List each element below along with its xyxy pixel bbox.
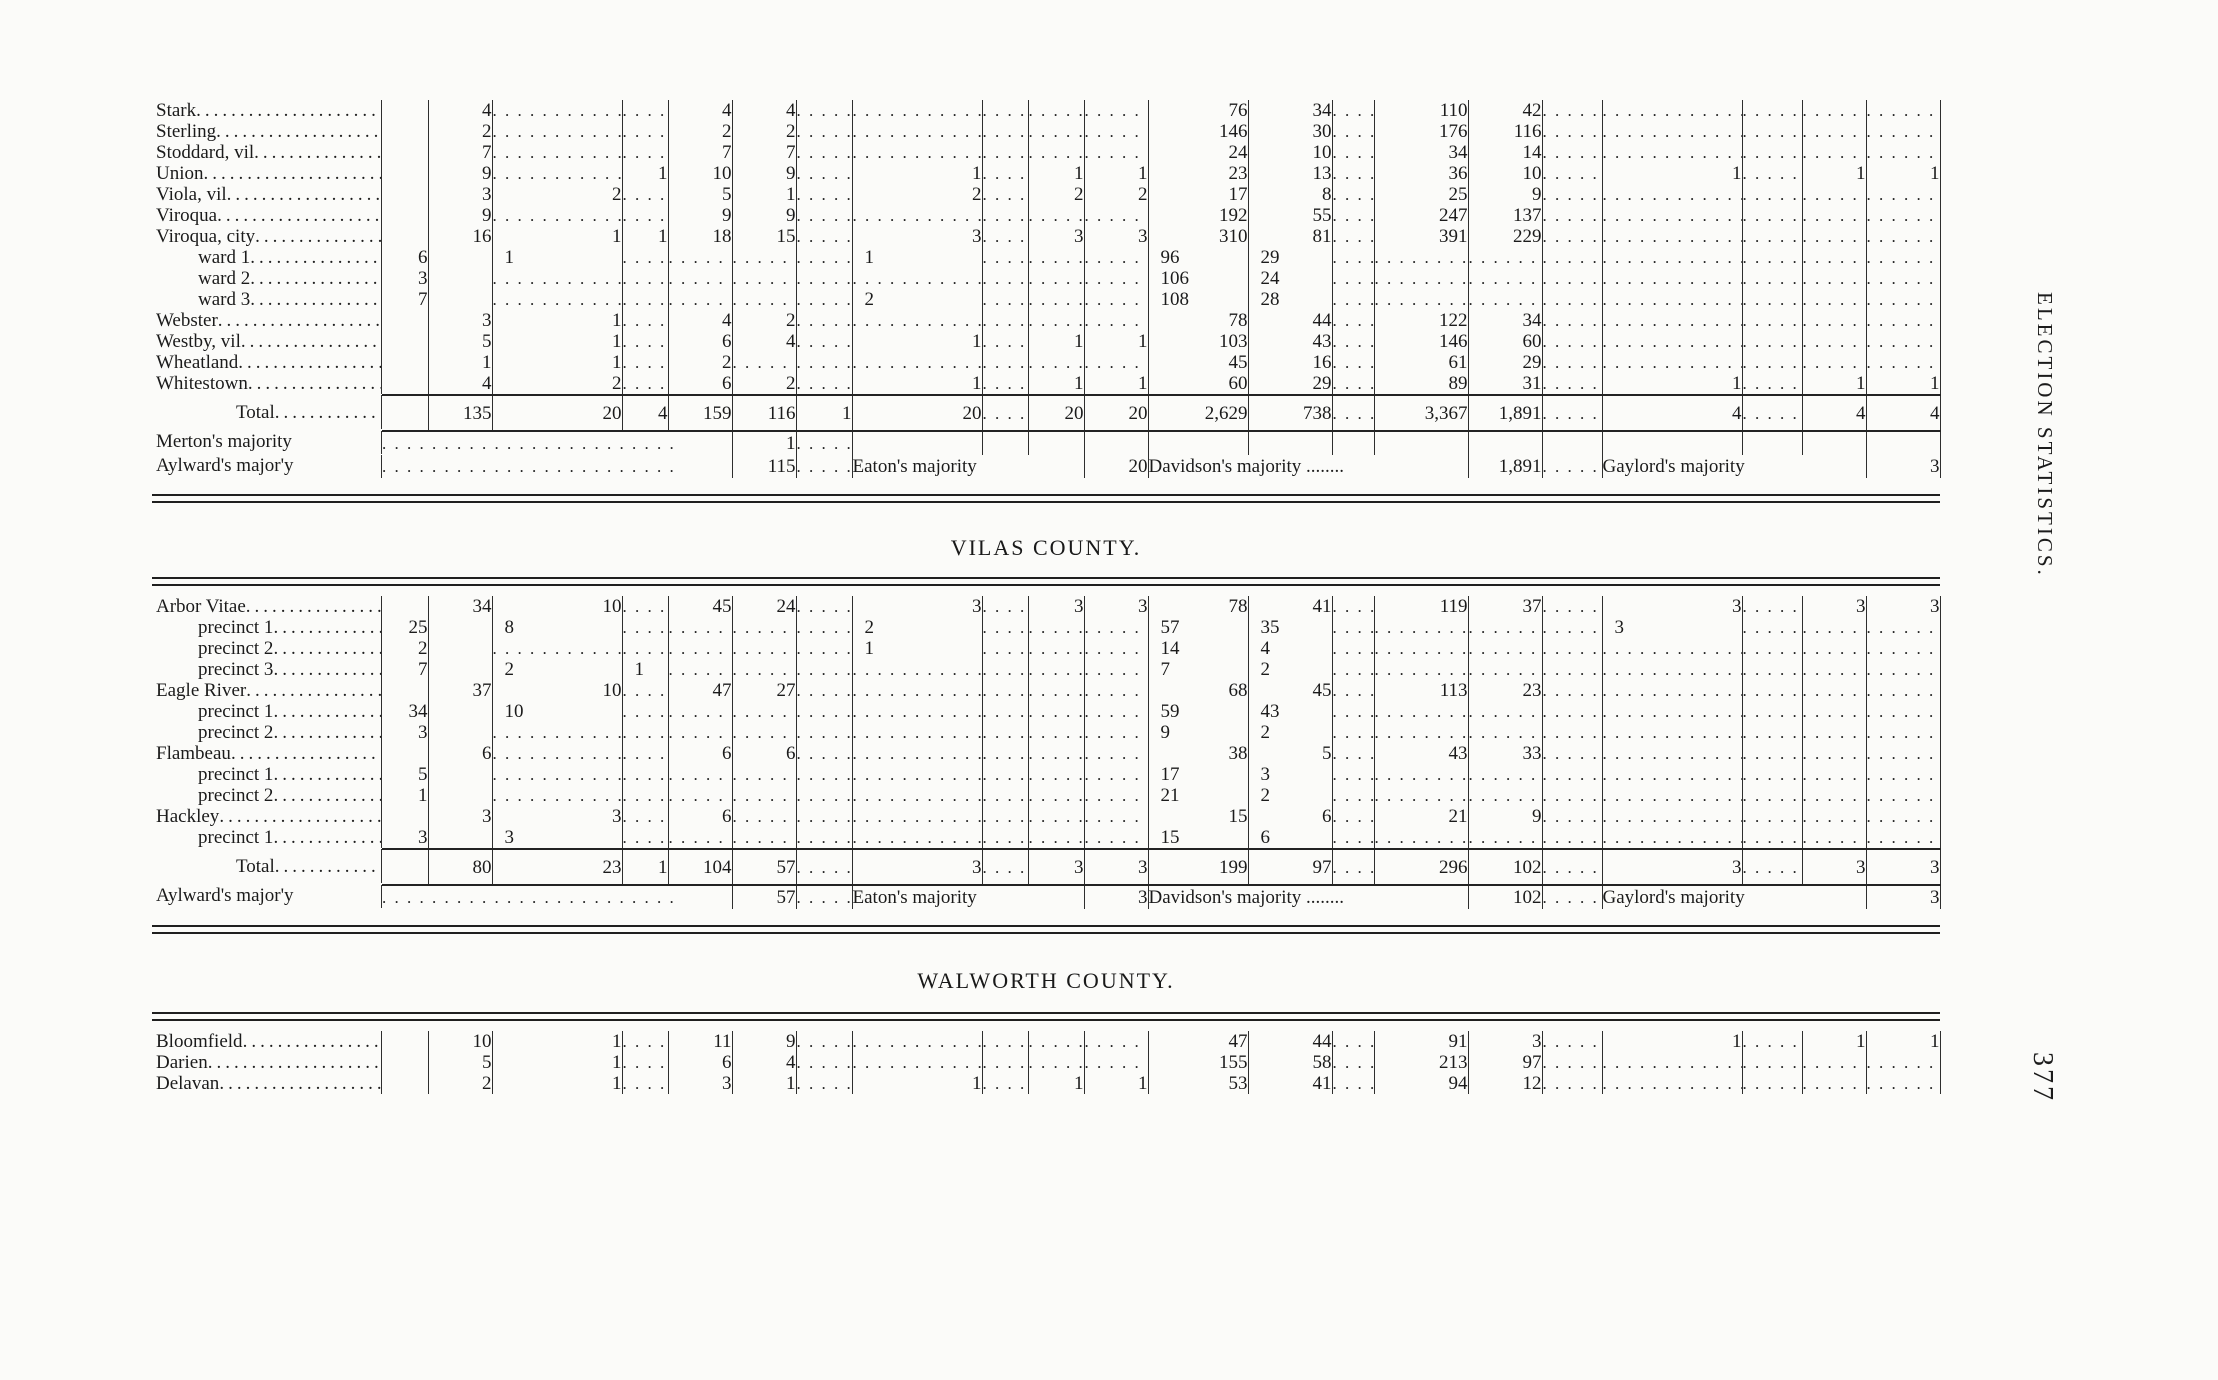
leader-cell [1542, 1052, 1602, 1073]
value-cell: 310 [1148, 226, 1248, 247]
leader-cell [982, 163, 1028, 184]
value-cell: 115 [732, 455, 796, 478]
value-cell: 3 [1866, 849, 1940, 885]
leader-cell [1028, 352, 1084, 373]
leader-cell [1866, 142, 1940, 163]
leader-cell [1866, 806, 1940, 827]
value-cell: 2 [1028, 184, 1084, 205]
leader-cell [1332, 205, 1374, 226]
leader-cell [796, 1052, 852, 1073]
leader-cell [1374, 638, 1468, 659]
leader-cell [1542, 331, 1602, 352]
leader-cell [1802, 722, 1866, 743]
leader-cell [1802, 226, 1866, 247]
leader-cell [852, 701, 982, 722]
leader-cell [1866, 785, 1940, 806]
leader-cell [1602, 806, 1742, 827]
leader-cell [982, 205, 1028, 226]
value-cell: 1 [1802, 163, 1866, 184]
table-row: Aylward's major'y57Eaton's majority3Davi… [152, 885, 1940, 909]
value-cell: 1 [732, 1073, 796, 1094]
majority-label-cell: Davidson's majority ........ [1148, 885, 1468, 909]
value-cell: 76 [1148, 100, 1248, 121]
value-cell: 6 [428, 743, 492, 764]
leader-cell [1742, 352, 1802, 373]
value-cell: 1 [1084, 1073, 1148, 1094]
leader-cell [1028, 247, 1084, 268]
value-cell: 1 [1084, 331, 1148, 352]
leader-cell [622, 100, 668, 121]
table-row: precinct 1258257353 [152, 617, 1940, 638]
value-cell: 1 [852, 247, 982, 268]
leader-cell [622, 142, 668, 163]
value-cell: 4 [1802, 395, 1866, 431]
leader-cell [1742, 722, 1802, 743]
value-cell: 1 [1602, 1031, 1742, 1052]
leader-cell [1468, 268, 1542, 289]
value-cell: 3 [1028, 226, 1084, 247]
leader-cell [1602, 1073, 1742, 1094]
leader-cell [1866, 331, 1940, 352]
leader-cell [1802, 659, 1866, 680]
leader-cell [1468, 659, 1542, 680]
leader-cell [1602, 205, 1742, 226]
value-cell: 91 [1374, 1031, 1468, 1052]
empty-cell [1332, 431, 1374, 455]
table-row: precinct 15173 [152, 764, 1940, 785]
leader-cell [796, 659, 852, 680]
value-cell: 1 [1084, 373, 1148, 395]
leader-cell [852, 142, 982, 163]
empty-cell [1248, 431, 1332, 455]
table-row: precinct 372172 [152, 659, 1940, 680]
empty-cell [428, 268, 492, 289]
value-cell: 97 [1248, 849, 1332, 885]
leader-cell [796, 764, 852, 785]
value-cell: 59 [1148, 701, 1248, 722]
leader-cell [622, 1031, 668, 1052]
row-label: Viola, vil [152, 184, 382, 205]
leader-cell [732, 247, 796, 268]
value-cell: 3 [428, 806, 492, 827]
value-cell: 2 [428, 1073, 492, 1094]
leader-cell [1332, 121, 1374, 142]
value-cell: 61 [1374, 352, 1468, 373]
value-cell: 4 [1602, 395, 1742, 431]
leader-cell [668, 617, 732, 638]
value-cell: 53 [1148, 1073, 1248, 1094]
leader-cell [1802, 310, 1866, 331]
value-cell: 155 [1148, 1052, 1248, 1073]
leader-cell [1468, 764, 1542, 785]
value-cell: 3 [1028, 596, 1084, 617]
value-cell: 34 [428, 596, 492, 617]
value-cell: 23 [1148, 163, 1248, 184]
row-label: precinct 3 [152, 659, 382, 680]
leader-cell [622, 352, 668, 373]
value-cell: 34 [382, 701, 428, 722]
leader-cell [982, 659, 1028, 680]
value-cell: 16 [428, 226, 492, 247]
leader-cell [1542, 617, 1602, 638]
leader-cell [1742, 100, 1802, 121]
leader-cell [622, 596, 668, 617]
leader-cell [622, 680, 668, 701]
leader-cell [1084, 659, 1148, 680]
leader-cell [982, 827, 1028, 849]
majority-label-cell: Gaylord's majority [1602, 455, 1866, 478]
leader-cell [796, 827, 852, 849]
value-cell: 1 [852, 373, 982, 395]
value-cell: 2 [852, 289, 982, 310]
leader-cell [796, 431, 852, 455]
value-cell: 34 [1374, 142, 1468, 163]
value-cell: 2 [492, 373, 622, 395]
leader-cell [796, 455, 852, 478]
leader-cell [732, 806, 796, 827]
leader-cell [982, 638, 1028, 659]
leader-cell [492, 289, 622, 310]
leader-cell [1542, 310, 1602, 331]
leader-cell [1542, 1031, 1602, 1052]
value-cell: 6 [668, 373, 732, 395]
table-row: Whitestown426211160298931111 [152, 373, 1940, 395]
leader-cell [1742, 617, 1802, 638]
leader-cell [1742, 226, 1802, 247]
value-cell: 94 [1374, 1073, 1468, 1094]
empty-cell [1468, 431, 1542, 455]
empty-cell [1542, 431, 1602, 455]
leader-cell [982, 373, 1028, 395]
leader-cell [1028, 1052, 1084, 1073]
leader-cell [1802, 100, 1866, 121]
leader-cell [1802, 268, 1866, 289]
leader-cell [1542, 184, 1602, 205]
value-cell: 1 [622, 659, 668, 680]
leader-cell [796, 638, 852, 659]
value-cell: 738 [1248, 395, 1332, 431]
leader-cell [492, 638, 622, 659]
leader-cell [1332, 163, 1374, 184]
leader-cell [668, 827, 732, 849]
leader-cell [1332, 701, 1374, 722]
value-cell: 1 [622, 849, 668, 885]
leader-cell [982, 680, 1028, 701]
table-row: Viroqua99919255247137 [152, 205, 1940, 226]
leader-cell [1866, 289, 1940, 310]
value-cell: 58 [1248, 1052, 1332, 1073]
row-label: precinct 1 [152, 764, 382, 785]
leader-cell [852, 827, 982, 849]
leader-cell [492, 785, 622, 806]
leader-cell [1084, 310, 1148, 331]
leader-cell [1542, 885, 1602, 909]
leader-cell [622, 184, 668, 205]
row-label: precinct 2 [152, 722, 382, 743]
table-row: Arbor Vitae34104524333784111937333 [152, 596, 1940, 617]
value-cell: 10 [492, 680, 622, 701]
leader-cell [1802, 701, 1866, 722]
value-cell: 41 [1248, 1073, 1332, 1094]
value-cell: 45 [668, 596, 732, 617]
value-cell: 9 [1148, 722, 1248, 743]
value-cell: 4 [732, 100, 796, 121]
leader-cell [1542, 764, 1602, 785]
value-cell: 20 [1084, 455, 1148, 478]
value-cell: 20 [492, 395, 622, 431]
leader-cell [622, 806, 668, 827]
value-cell: 11 [668, 1031, 732, 1052]
leader-cell [1332, 849, 1374, 885]
leader-cell [1742, 806, 1802, 827]
leader-cell [492, 722, 622, 743]
leader-cell [982, 617, 1028, 638]
leader-cell [1028, 722, 1084, 743]
leader-cell [668, 764, 732, 785]
leader-cell [1374, 247, 1468, 268]
leader-cell [732, 268, 796, 289]
value-cell: 97 [1468, 1052, 1542, 1073]
leader-cell [982, 1031, 1028, 1052]
leader-cell [1028, 680, 1084, 701]
leader-cell [1084, 268, 1148, 289]
leader-cell [1028, 638, 1084, 659]
value-cell: 23 [1468, 680, 1542, 701]
table-row: ward 2310624 [152, 268, 1940, 289]
value-cell: 1 [1866, 1031, 1940, 1052]
value-cell: 1 [622, 163, 668, 184]
leader-cell [1742, 1073, 1802, 1094]
value-cell: 229 [1468, 226, 1542, 247]
leader-cell [1332, 806, 1374, 827]
value-cell: 43 [1374, 743, 1468, 764]
leader-cell [982, 331, 1028, 352]
leader-cell [732, 764, 796, 785]
leader-cell [1866, 184, 1940, 205]
leader-cell [1866, 827, 1940, 849]
leader-cell [668, 722, 732, 743]
table-row: Westby, vil51641111034314660 [152, 331, 1940, 352]
leader-cell [492, 163, 622, 184]
leader-cell [1866, 743, 1940, 764]
leader-cell [1802, 617, 1866, 638]
empty-cell [982, 431, 1028, 455]
leader-cell [1028, 701, 1084, 722]
value-cell: 7 [668, 142, 732, 163]
value-cell: 122 [1374, 310, 1468, 331]
value-cell: 6 [382, 247, 428, 268]
leader-cell [1542, 247, 1602, 268]
table-row: precinct 134105943 [152, 701, 1940, 722]
leader-cell [982, 142, 1028, 163]
leader-cell [622, 310, 668, 331]
value-cell: 192 [1148, 205, 1248, 226]
majority-label-cell: Eaton's majority [852, 885, 1084, 909]
leader-cell [852, 100, 982, 121]
county-heading-vilas: VILAS COUNTY. [152, 535, 1940, 561]
value-cell: 34 [1248, 100, 1332, 121]
leader-cell [1542, 373, 1602, 395]
leader-cell [1542, 100, 1602, 121]
leader-cell [796, 226, 852, 247]
leader-cell [1742, 1052, 1802, 1073]
leader-cell [732, 659, 796, 680]
leader-cell [1084, 722, 1148, 743]
value-cell: 102 [1468, 885, 1542, 909]
value-cell: 135 [428, 395, 492, 431]
value-cell: 57 [732, 849, 796, 885]
leader-cell [1028, 142, 1084, 163]
empty-cell [382, 310, 428, 331]
leader-cell [1742, 395, 1802, 431]
leader-cell [622, 785, 668, 806]
leader-cell [1602, 785, 1742, 806]
leader-cell [1374, 289, 1468, 310]
leader-cell [982, 289, 1028, 310]
table-row: Union9110911123133610111 [152, 163, 1940, 184]
value-cell: 3,367 [1374, 395, 1468, 431]
leader-cell [1866, 659, 1940, 680]
leader-cell [1332, 827, 1374, 849]
leader-cell [796, 121, 852, 142]
leader-cell [622, 121, 668, 142]
leader-cell [732, 638, 796, 659]
leader-cell [732, 617, 796, 638]
leader-cell [796, 617, 852, 638]
value-cell: 15 [732, 226, 796, 247]
leader-cell [796, 806, 852, 827]
leader-cell [1084, 247, 1148, 268]
value-cell: 57 [732, 885, 796, 909]
leader-cell [982, 722, 1028, 743]
leader-cell [852, 764, 982, 785]
value-cell: 116 [1468, 121, 1542, 142]
empty-cell [382, 743, 428, 764]
leader-cell [1542, 268, 1602, 289]
value-cell: 3 [1802, 596, 1866, 617]
value-cell: 6 [668, 806, 732, 827]
leader-cell [732, 352, 796, 373]
leader-cell [1028, 785, 1084, 806]
value-cell: 12 [1468, 1073, 1542, 1094]
leader-cell [668, 268, 732, 289]
row-label: Viroqua, city [152, 226, 382, 247]
leader-cell [1084, 827, 1148, 849]
row-label: Aylward's major'y [152, 455, 382, 478]
value-cell: 3 [852, 596, 982, 617]
leader-cell [1802, 142, 1866, 163]
value-cell: 4 [668, 100, 732, 121]
leader-cell [622, 1052, 668, 1073]
top-margin [152, 0, 1944, 100]
leader-cell [796, 247, 852, 268]
value-cell: 1 [492, 1052, 622, 1073]
leader-cell [1332, 226, 1374, 247]
empty-cell [382, 1073, 428, 1094]
value-cell: 1 [732, 184, 796, 205]
empty-cell [428, 289, 492, 310]
leader-cell [1602, 722, 1742, 743]
leader-cell [1332, 373, 1374, 395]
leader-cell [1542, 1073, 1602, 1094]
value-cell: 2 [1248, 785, 1332, 806]
value-cell: 78 [1148, 596, 1248, 617]
leader-cell [796, 743, 852, 764]
value-cell: 6 [1248, 806, 1332, 827]
leader-cell [1084, 142, 1148, 163]
value-cell: 14 [1148, 638, 1248, 659]
value-cell: 108 [1148, 289, 1248, 310]
value-cell: 14 [1468, 142, 1542, 163]
leader-cell [1802, 247, 1866, 268]
empty-cell [428, 827, 492, 849]
empty-cell [428, 638, 492, 659]
value-cell: 44 [1248, 310, 1332, 331]
leader-cell [492, 205, 622, 226]
value-cell: 5 [382, 764, 428, 785]
leader-cell [796, 1031, 852, 1052]
value-cell: 6 [1248, 827, 1332, 849]
leader-cell [1468, 827, 1542, 849]
row-label: Whitestown [152, 373, 382, 394]
leader-cell [1028, 100, 1084, 121]
value-cell: 20 [1084, 395, 1148, 431]
leader-cell [1742, 659, 1802, 680]
table-row: Sterling22214630176116 [152, 121, 1940, 142]
leader-cell [1542, 849, 1602, 885]
leader-cell [796, 268, 852, 289]
value-cell: 1 [1028, 1073, 1084, 1094]
value-cell: 9 [668, 205, 732, 226]
value-cell: 35 [1248, 617, 1332, 638]
value-cell: 4 [1248, 638, 1332, 659]
leader-cell [1866, 680, 1940, 701]
leader-cell [1084, 1052, 1148, 1073]
leader-cell [1374, 659, 1468, 680]
leader-cell [1602, 121, 1742, 142]
leader-cell [382, 431, 732, 455]
leader-cell [1742, 121, 1802, 142]
row-label: Westby, vil [152, 331, 382, 352]
leader-cell [852, 310, 982, 331]
value-cell: 4 [428, 373, 492, 395]
value-cell: 2 [852, 617, 982, 638]
leader-cell [1802, 205, 1866, 226]
majority-label-cell: Eaton's majority [852, 455, 1084, 478]
leader-cell [1542, 722, 1602, 743]
value-cell: 33 [1468, 743, 1542, 764]
row-label: Delavan [152, 1073, 382, 1094]
leader-cell [852, 1031, 982, 1052]
leader-cell [1084, 743, 1148, 764]
value-cell: 1 [1802, 1031, 1866, 1052]
value-cell: 30 [1248, 121, 1332, 142]
leader-cell [1374, 268, 1468, 289]
leader-cell [1802, 743, 1866, 764]
leader-cell [852, 1052, 982, 1073]
leader-cell [622, 743, 668, 764]
value-cell: 10 [668, 163, 732, 184]
value-cell: 80 [428, 849, 492, 885]
value-cell: 25 [382, 617, 428, 638]
leader-cell [1866, 205, 1940, 226]
leader-cell [622, 331, 668, 352]
empty-cell [1148, 431, 1248, 455]
table-row: Eagle River37104727684511323 [152, 680, 1940, 701]
value-cell: 1 [1602, 373, 1742, 395]
table-row: Webster3142784412234 [152, 310, 1940, 331]
table-row: Total802311045733319997296102333 [152, 849, 1940, 885]
